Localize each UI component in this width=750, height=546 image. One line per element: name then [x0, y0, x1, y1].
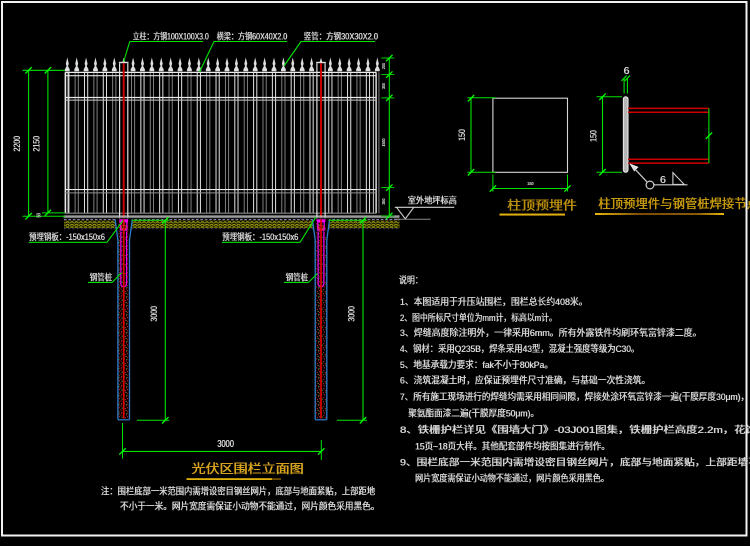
svg-text:网片宽度需保证小动物不能通过，网片颜色采用黑色。: 网片宽度需保证小动物不能通过，网片颜色采用黑色。: [415, 472, 609, 484]
svg-text:2、图中所标尺寸单位为mm计，标高以m计。: 2、图中所标尺寸单位为mm计，标高以m计。: [400, 311, 557, 323]
svg-text:钢管桩: 钢管桩: [286, 272, 309, 283]
svg-text:1、本图适用于升压站围栏，围栏总长约408米。: 1、本图适用于升压站围栏，围栏总长约408米。: [400, 296, 588, 307]
svg-text:柱顶预埋件与钢管桩焊接节点: 柱顶预埋件与钢管桩焊接节点: [598, 196, 750, 211]
svg-text:7、所有施工现场进行的焊缝均需采用相同间隙，焊接处涂环氧富锌: 7、所有施工现场进行的焊缝均需采用相同间隙，焊接处涂环氧富锌漆一遍(干膜厚度30…: [400, 390, 749, 402]
svg-text:150: 150: [457, 129, 467, 141]
svg-text:预埋钢板：-150x150x6: 预埋钢板：-150x150x6: [29, 231, 105, 242]
svg-text:横梁：方钢60X40X2.0: 横梁：方钢60X40X2.0: [217, 31, 288, 42]
svg-text:3、焊缝高度除注明外，一律采用6mm。所有外露铁件均刷环氧富: 3、焊缝高度除注明外，一律采用6mm。所有外露铁件均刷环氧富锌漆二度。: [400, 327, 702, 338]
svg-text:6: 6: [624, 65, 630, 77]
svg-text:注：围栏底部一米范围内需增设密目钢丝网片，底部与地面紧贴，上: 注：围栏底部一米范围内需增设密目钢丝网片，底部与地面紧贴，上部距地: [101, 485, 375, 497]
svg-text:光伏区围栏立面图: 光伏区围栏立面图: [192, 462, 304, 476]
svg-text:5、地基承载力要求：fak不小于80kPa。: 5、地基承载力要求：fak不小于80kPa。: [400, 358, 553, 370]
svg-text:预埋钢板：-150x150x6: 预埋钢板：-150x150x6: [222, 231, 298, 242]
svg-text:9、围栏底部一米范围内需增设密目钢丝网片，底部与地面紧贴，上: 9、围栏底部一米范围内需增设密目钢丝网片，底部与地面紧贴，上部距墙不小于一米。: [400, 456, 750, 468]
svg-text:8、铁栅护栏详见《围墙大门》-03J001图集，铁栅护栏高度: 8、铁栅护栏详见《围墙大门》-03J001图集，铁栅护栏高度2.2m，花饰选用详…: [400, 424, 750, 436]
svg-text:150: 150: [527, 181, 534, 187]
svg-text:50: 50: [36, 212, 42, 217]
svg-text:4、钢材：采用Q235B，焊条采用43型，混凝土强度等级为C: 4、钢材：采用Q235B，焊条采用43型，混凝土强度等级为C30。: [400, 342, 639, 354]
svg-text:柱顶预埋件: 柱顶预埋件: [508, 198, 578, 212]
svg-text:1500: 1500: [380, 138, 386, 147]
svg-text:3000: 3000: [149, 305, 159, 321]
svg-text:350: 350: [380, 198, 386, 205]
svg-text:3000: 3000: [347, 305, 357, 321]
svg-text:钢管桩: 钢管桩: [90, 272, 113, 283]
svg-text:说明：: 说明：: [399, 273, 423, 285]
svg-text:150: 150: [589, 130, 599, 142]
svg-text:立柱：方钢100X100X3.0: 立柱：方钢100X100X3.0: [133, 31, 210, 42]
svg-text:2150: 2150: [31, 135, 41, 151]
svg-text:15页~18页大样。其他配套部件均按图集进行制作。: 15页~18页大样。其他配套部件均按图集进行制作。: [415, 440, 610, 452]
svg-text:2200: 2200: [12, 135, 22, 151]
svg-text:竖管：方钢30X30X2.0: 竖管：方钢30X30X2.0: [304, 31, 379, 42]
svg-text:不小于一米。网片宽度需保证小动物不能通过，网片颜色采用黑色。: 不小于一米。网片宽度需保证小动物不能通过，网片颜色采用黑色。: [120, 500, 379, 512]
svg-text:聚氨酯面漆二遍(干膜厚度50μm)。: 聚氨酯面漆二遍(干膜厚度50μm)。: [408, 407, 539, 419]
svg-text:室外地坪标高: 室外地坪标高: [408, 194, 457, 206]
svg-text:300: 300: [380, 82, 386, 89]
svg-text:6、浇筑混凝土时，应保证预埋件尺寸准确，与基础一次性浇筑。: 6、浇筑混凝土时，应保证预埋件尺寸准确，与基础一次性浇筑。: [400, 374, 650, 385]
svg-text:200: 200: [380, 62, 386, 69]
svg-text:3000: 3000: [217, 438, 234, 449]
svg-text:6: 6: [660, 174, 666, 186]
